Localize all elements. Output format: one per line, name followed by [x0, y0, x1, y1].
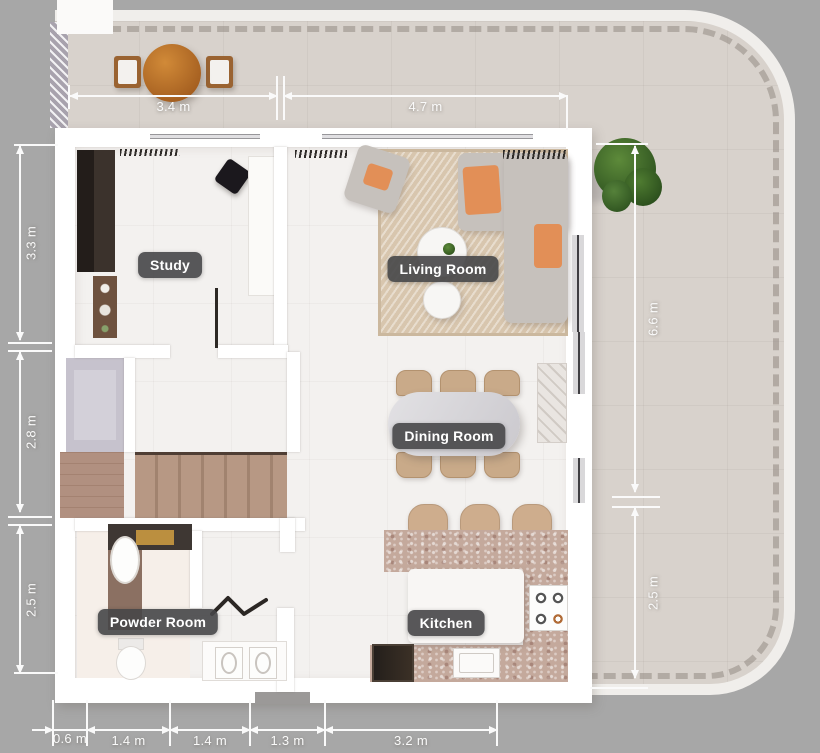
wash-basin: [110, 536, 140, 584]
window: [322, 134, 533, 139]
curtain: [120, 149, 180, 156]
interior-wall: [280, 518, 295, 552]
sideboard: [537, 363, 567, 443]
window: [572, 235, 584, 332]
plant-icon: [443, 243, 455, 255]
door-leaf: [215, 288, 218, 348]
room-label-study: Study: [138, 252, 202, 278]
tree-icon: [594, 138, 664, 218]
outdoor-chair: [114, 56, 141, 88]
toilet: [116, 646, 146, 680]
dimension-left-2: 2.5 m: [19, 526, 21, 673]
kitchen-sink: [453, 648, 500, 678]
study-desk-cabinet: [77, 150, 115, 272]
coffee-table: [423, 281, 461, 319]
washer-icon: [215, 647, 243, 679]
interior-wall: [218, 345, 288, 358]
laundry-closet: [202, 641, 287, 681]
interior-wall: [124, 358, 135, 452]
interior-wall: [287, 352, 300, 452]
washer-icon: [249, 647, 277, 679]
dimension-left-0: 3.3 m: [19, 146, 21, 340]
stove-icon: [529, 585, 568, 631]
dimension-right-0: 6.6 m: [634, 146, 636, 492]
door-threshold: [255, 692, 310, 704]
floor-plan-canvas: Study Living Room Dining Room Powder Roo…: [0, 0, 820, 753]
sofa-cushion: [462, 165, 501, 215]
glass-door: [573, 458, 585, 503]
towel: [136, 530, 174, 545]
wood-floor: [60, 452, 124, 518]
folding-door-icon: [210, 592, 272, 618]
balcony-railing: [50, 22, 68, 128]
study-sideboard: [248, 156, 275, 296]
glass-door: [573, 332, 585, 394]
stairs: [135, 452, 287, 518]
room-label-powder-room: Powder Room: [98, 609, 218, 635]
dimension-right-1: 2.5 m: [634, 508, 636, 678]
study-shelf: [93, 276, 117, 338]
curtain: [295, 150, 347, 158]
dimension-top-0: 3.4 m: [70, 95, 277, 97]
room-label-living-room: Living Room: [388, 256, 499, 282]
room-label-dining-room: Dining Room: [392, 423, 505, 449]
curtain: [503, 150, 567, 159]
dimension-bottom-3: 1.3 m: [250, 729, 325, 731]
outdoor-round-table: [143, 44, 201, 102]
sofa-cushion: [534, 224, 562, 268]
interior-wall: [75, 345, 170, 358]
window: [150, 134, 260, 139]
dimension-bottom-4: 3.2 m: [325, 729, 497, 731]
dimension-left-1: 2.8 m: [19, 352, 21, 512]
dimension-bottom-0: 0.6 m: [53, 729, 87, 731]
wall-stub: [57, 0, 113, 34]
dimension-top-1: 4.7 m: [284, 95, 567, 97]
dimension-bottom-2: 1.4 m: [170, 729, 250, 731]
interior-wall: [274, 147, 287, 352]
kitchen-bar-counter: [384, 530, 568, 572]
room-label-kitchen: Kitchen: [408, 610, 485, 636]
entry-mat: [66, 358, 124, 452]
outdoor-chair: [206, 56, 233, 88]
dark-appliance: [372, 644, 414, 682]
dimension-bottom-1: 1.4 m: [87, 729, 170, 731]
